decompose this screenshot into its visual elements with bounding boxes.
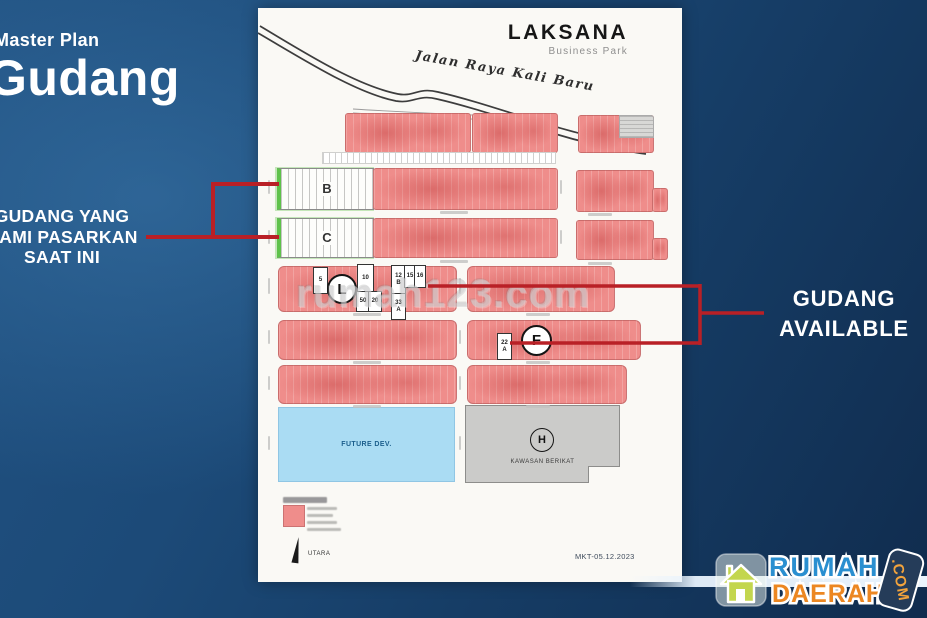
row-side-smudge [268, 230, 270, 244]
block-row-top-right [578, 115, 654, 153]
row-label-smudge [526, 361, 550, 364]
marketed-callout-line3: SAAT INI [0, 247, 142, 268]
legend-title-smudge [283, 497, 327, 503]
block-row-c-right-step [652, 238, 668, 260]
block-f-marker: F [521, 325, 552, 356]
bonded-zone-label: KAWASAN BERIKAT [466, 459, 619, 465]
legend-text-smudge [307, 507, 337, 510]
available-callout-line1: GUDANG [768, 284, 920, 314]
block-row-c-right [576, 220, 654, 260]
row-label-smudge [353, 405, 381, 408]
row-label-smudge [440, 211, 468, 214]
available-callout-line2: AVAILABLE [768, 314, 920, 344]
block-c-label: C [318, 231, 335, 245]
bonded-zone-block: H KAWASAN BERIKAT [465, 405, 620, 483]
row-side-smudge [268, 278, 270, 294]
unit-22-label: 22 [501, 340, 508, 347]
road-side-smudge [459, 330, 461, 344]
legend: UTARA [280, 496, 375, 581]
row-label-smudge [353, 361, 381, 364]
road-side-smudge [560, 230, 562, 244]
legend-text-smudge [307, 521, 337, 524]
logo-word2: DAERAH [772, 580, 885, 608]
row-side-smudge [268, 330, 270, 344]
block-bottom-row-east [467, 365, 627, 404]
block-b-label: B [318, 182, 335, 196]
logo-word1: RUMAH [769, 552, 880, 582]
block-b-east [373, 168, 558, 210]
block-c: C [277, 218, 374, 258]
row-label-smudge [588, 213, 612, 216]
road-side-smudge [560, 180, 562, 194]
unit-22-suffix: A [502, 347, 506, 354]
road-side-smudge [459, 376, 461, 390]
north-arrow-icon [291, 537, 301, 564]
watermark: rumah123.com [296, 272, 590, 317]
block-f-row-west [278, 320, 457, 360]
left-kicker: Master Plan [0, 30, 99, 51]
row-label-smudge [526, 405, 550, 408]
block-row-b-right [576, 170, 654, 212]
row-side-smudge [268, 436, 270, 450]
block-row-top-left [345, 113, 471, 153]
marketed-callout-line2: KAMI PASARKAN [0, 227, 142, 248]
poster-root: Master Plan Gudang GUDANG YANG KAMI PASA… [0, 0, 927, 618]
row-side-smudge [268, 376, 270, 390]
block-b: B [277, 168, 374, 210]
block-h-letter: H [538, 434, 546, 446]
block-f-row [467, 320, 641, 360]
block-bottom-row-west [278, 365, 457, 404]
marketed-callout: GUDANG YANG KAMI PASARKAN SAAT INI [0, 206, 142, 268]
block-c-east [373, 218, 558, 258]
road-side-smudge [459, 436, 461, 450]
row-label-smudge [440, 260, 468, 263]
legend-text-smudge [307, 528, 341, 531]
unit-22a: 22A [497, 333, 512, 360]
legend-text-smudge [307, 514, 333, 517]
rumahdaerah-logo-art: RUMAH DAERAH .COM [712, 548, 927, 618]
future-dev-block: FUTURE DEV. [278, 407, 455, 482]
legend-sold-swatch [283, 505, 305, 527]
bonded-zone-notch [588, 466, 620, 483]
row-side-smudge [268, 180, 270, 194]
marketed-callout-line1: GUDANG YANG [0, 206, 142, 227]
rumahdaerah-logo: RUMAH DAERAH .COM [712, 548, 927, 618]
north-label: UTARA [308, 551, 330, 557]
row-label-smudge [588, 262, 612, 265]
block-row-top-mid [472, 113, 558, 153]
access-strip [322, 152, 556, 164]
gray-hatch-area [619, 115, 654, 138]
available-callout: GUDANG AVAILABLE [768, 284, 920, 344]
block-f-letter: F [532, 332, 541, 349]
block-h-marker: H [530, 428, 554, 452]
future-dev-label: FUTURE DEV. [341, 441, 391, 448]
plan-footer-code: MKT-05.12.2023 [575, 552, 635, 561]
left-title: Gudang [0, 50, 180, 106]
block-row-b-right-step [652, 188, 668, 212]
